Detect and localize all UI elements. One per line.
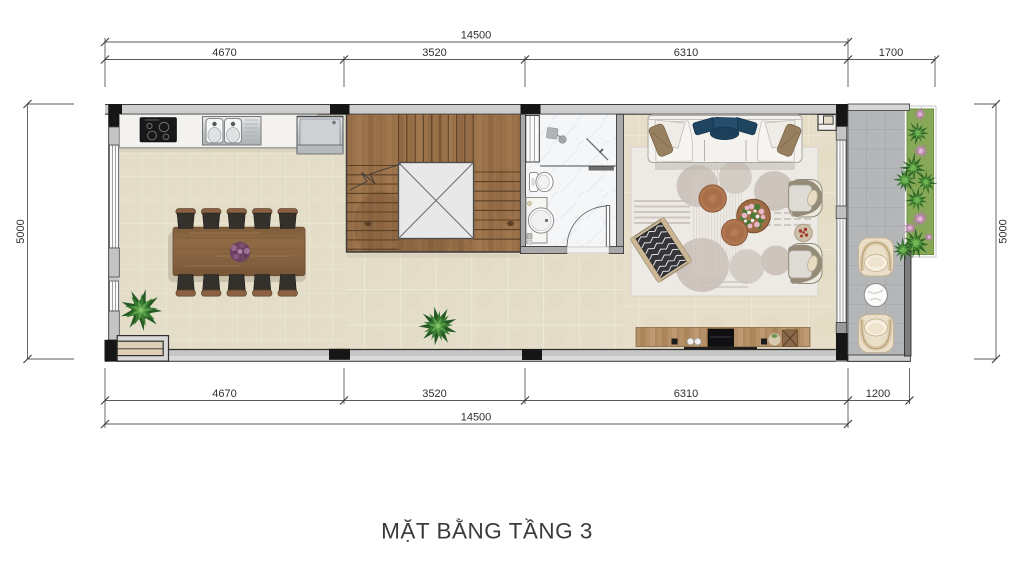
svg-text:1700: 1700	[879, 47, 903, 59]
svg-text:14500: 14500	[461, 30, 492, 42]
svg-text:3520: 3520	[422, 388, 446, 400]
svg-text:6310: 6310	[674, 47, 698, 59]
svg-text:MẶT BẰNG TẦNG 3: MẶT BẰNG TẦNG 3	[381, 519, 593, 544]
svg-text:3520: 3520	[422, 47, 446, 59]
svg-text:5000: 5000	[15, 219, 27, 243]
svg-text:1200: 1200	[866, 388, 890, 400]
svg-text:5000: 5000	[998, 219, 1010, 243]
svg-text:4670: 4670	[212, 388, 236, 400]
svg-text:4670: 4670	[212, 47, 236, 59]
svg-text:6310: 6310	[674, 388, 698, 400]
svg-text:14500: 14500	[461, 412, 492, 424]
